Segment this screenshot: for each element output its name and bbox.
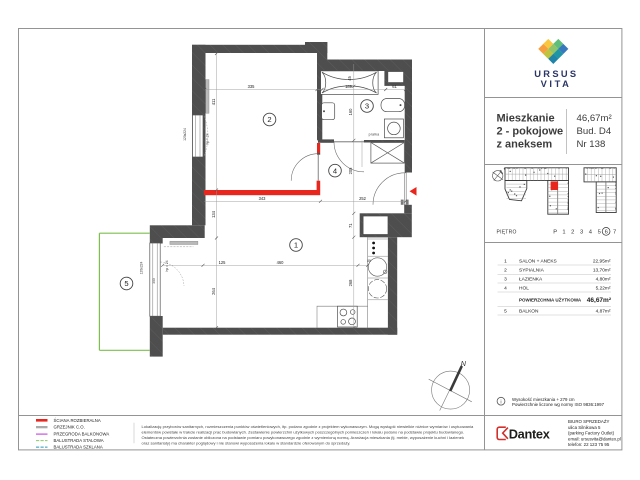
svg-text:ŚCIANA ROZBIERALNA: ŚCIANA ROZBIERALNA bbox=[54, 418, 101, 423]
svg-text:13,70m²: 13,70m² bbox=[593, 268, 611, 274]
svg-text:61: 61 bbox=[392, 84, 397, 89]
svg-text:SALON + ANEKS: SALON + ANEKS bbox=[519, 259, 557, 265]
svg-text:POWIERZCHNIA UŻYTKOWA: POWIERZCHNIA UŻYTKOWA bbox=[519, 297, 582, 303]
svg-text:120x224: 120x224 bbox=[140, 262, 144, 275]
svg-text:hp = 24: hp = 24 bbox=[165, 260, 169, 271]
svg-text:2: 2 bbox=[571, 230, 574, 236]
svg-text:189: 189 bbox=[345, 84, 353, 89]
svg-text:BALKON: BALKON bbox=[519, 309, 539, 315]
svg-text:1: 1 bbox=[562, 230, 565, 236]
svg-text:PIĘTRO: PIĘTRO bbox=[497, 229, 517, 235]
svg-text:4,80m²: 4,80m² bbox=[596, 277, 611, 283]
svg-text:BALUSTRADA STALOWA: BALUSTRADA STALOWA bbox=[54, 438, 104, 443]
svg-text:268: 268 bbox=[348, 279, 353, 287]
svg-text:i: i bbox=[500, 399, 501, 405]
svg-text:2 - pokojowe: 2 - pokojowe bbox=[497, 126, 564, 138]
svg-text:(parking Factory Outlet): (parking Factory Outlet) bbox=[568, 430, 615, 435]
svg-text:BIURO SPRZEDAŻY: BIURO SPRZEDAŻY bbox=[568, 419, 610, 424]
svg-text:ulica Silnikowa 5: ulica Silnikowa 5 bbox=[568, 425, 601, 430]
svg-text:4: 4 bbox=[504, 285, 507, 291]
svg-text:pralka: pralka bbox=[369, 132, 380, 136]
svg-text:6: 6 bbox=[605, 230, 608, 236]
svg-text:elementów powstałe w trakcie r: elementów powstałe w trakcie realizacji … bbox=[142, 430, 465, 435]
svg-text:BALUSTRADA SZKLANA: BALUSTRADA SZKLANA bbox=[54, 445, 103, 450]
svg-text:Mieszkanie: Mieszkanie bbox=[497, 113, 555, 125]
svg-text:3: 3 bbox=[365, 102, 369, 111]
svg-text:z aneksem: z aneksem bbox=[497, 139, 553, 151]
svg-text:85: 85 bbox=[367, 259, 371, 263]
svg-text:125: 125 bbox=[219, 260, 227, 265]
svg-text:46,67m²: 46,67m² bbox=[577, 113, 613, 124]
svg-text:71: 71 bbox=[348, 223, 353, 228]
svg-text:460: 460 bbox=[277, 260, 285, 265]
svg-text:1: 1 bbox=[504, 259, 507, 265]
svg-text:411: 411 bbox=[211, 98, 216, 105]
svg-text:205: 205 bbox=[348, 167, 353, 175]
svg-text:VITA: VITA bbox=[541, 79, 572, 89]
svg-text:335: 335 bbox=[248, 84, 256, 89]
svg-text:Nr 138: Nr 138 bbox=[577, 139, 606, 150]
svg-text:1: 1 bbox=[294, 241, 298, 250]
svg-text:4: 4 bbox=[333, 166, 337, 175]
svg-text:2: 2 bbox=[267, 115, 271, 124]
svg-text:SYPIALNIA: SYPIALNIA bbox=[519, 268, 545, 274]
svg-text:HOL: HOL bbox=[519, 285, 529, 291]
svg-text:5: 5 bbox=[504, 309, 507, 315]
svg-text:3: 3 bbox=[504, 277, 507, 283]
svg-text:134: 134 bbox=[211, 210, 216, 218]
svg-text:PRZEGRODA BALKONOWA: PRZEGRODA BALKONOWA bbox=[54, 431, 110, 436]
svg-text:Powierzchnie liczone wg normy: Powierzchnie liczone wg normy ISO 9836:1… bbox=[512, 402, 605, 407]
svg-text:GRZEJNIK C.O.: GRZEJNIK C.O. bbox=[54, 425, 85, 430]
svg-text:email: ursusvita@dantex.pl: email: ursusvita@dantex.pl bbox=[568, 436, 621, 441]
svg-text:telefon: 22 123 75 95: telefon: 22 123 75 95 bbox=[568, 442, 610, 447]
svg-text:160: 160 bbox=[348, 108, 353, 116]
svg-text:oraz sanitariaty) ma charakter: oraz sanitariaty) ma charakter poglądowy… bbox=[142, 441, 351, 446]
svg-text:45: 45 bbox=[347, 76, 352, 81]
svg-text:5: 5 bbox=[598, 230, 601, 236]
svg-text:4,87m²: 4,87m² bbox=[596, 309, 611, 315]
svg-text:Bud. D4: Bud. D4 bbox=[577, 126, 612, 137]
svg-text:120x224: 120x224 bbox=[183, 128, 187, 141]
svg-text:264: 264 bbox=[211, 287, 216, 295]
svg-text:300: 300 bbox=[152, 278, 156, 284]
svg-text:P: P bbox=[553, 230, 557, 236]
svg-text:N: N bbox=[461, 359, 467, 368]
svg-text:Dantex: Dantex bbox=[509, 426, 551, 441]
svg-text:URSUS: URSUS bbox=[534, 69, 578, 79]
svg-text:252: 252 bbox=[359, 196, 367, 201]
svg-text:ŁAZIENKA: ŁAZIENKA bbox=[519, 277, 543, 283]
svg-text:Wysokość mieszkania + 279 cm: Wysokość mieszkania + 279 cm bbox=[512, 397, 575, 402]
svg-text:7: 7 bbox=[613, 230, 616, 236]
svg-text:hp = 24: hp = 24 bbox=[205, 133, 209, 144]
svg-text:46,67m²: 46,67m² bbox=[587, 297, 612, 304]
svg-text:3: 3 bbox=[580, 230, 583, 236]
svg-text:5: 5 bbox=[124, 279, 128, 288]
svg-text:2: 2 bbox=[504, 268, 507, 274]
svg-text:Lokalizację przyborów sanitarn: Lokalizację przyborów sanitarnych, rozmi… bbox=[142, 424, 475, 429]
svg-text:5,22m²: 5,22m² bbox=[596, 285, 611, 291]
svg-text:343: 343 bbox=[259, 196, 267, 201]
svg-text:22,95m²: 22,95m² bbox=[593, 259, 611, 265]
svg-text:Ostateczna powierzchnia zostan: Ostateczna powierzchnia zostanie obliczo… bbox=[142, 435, 466, 440]
